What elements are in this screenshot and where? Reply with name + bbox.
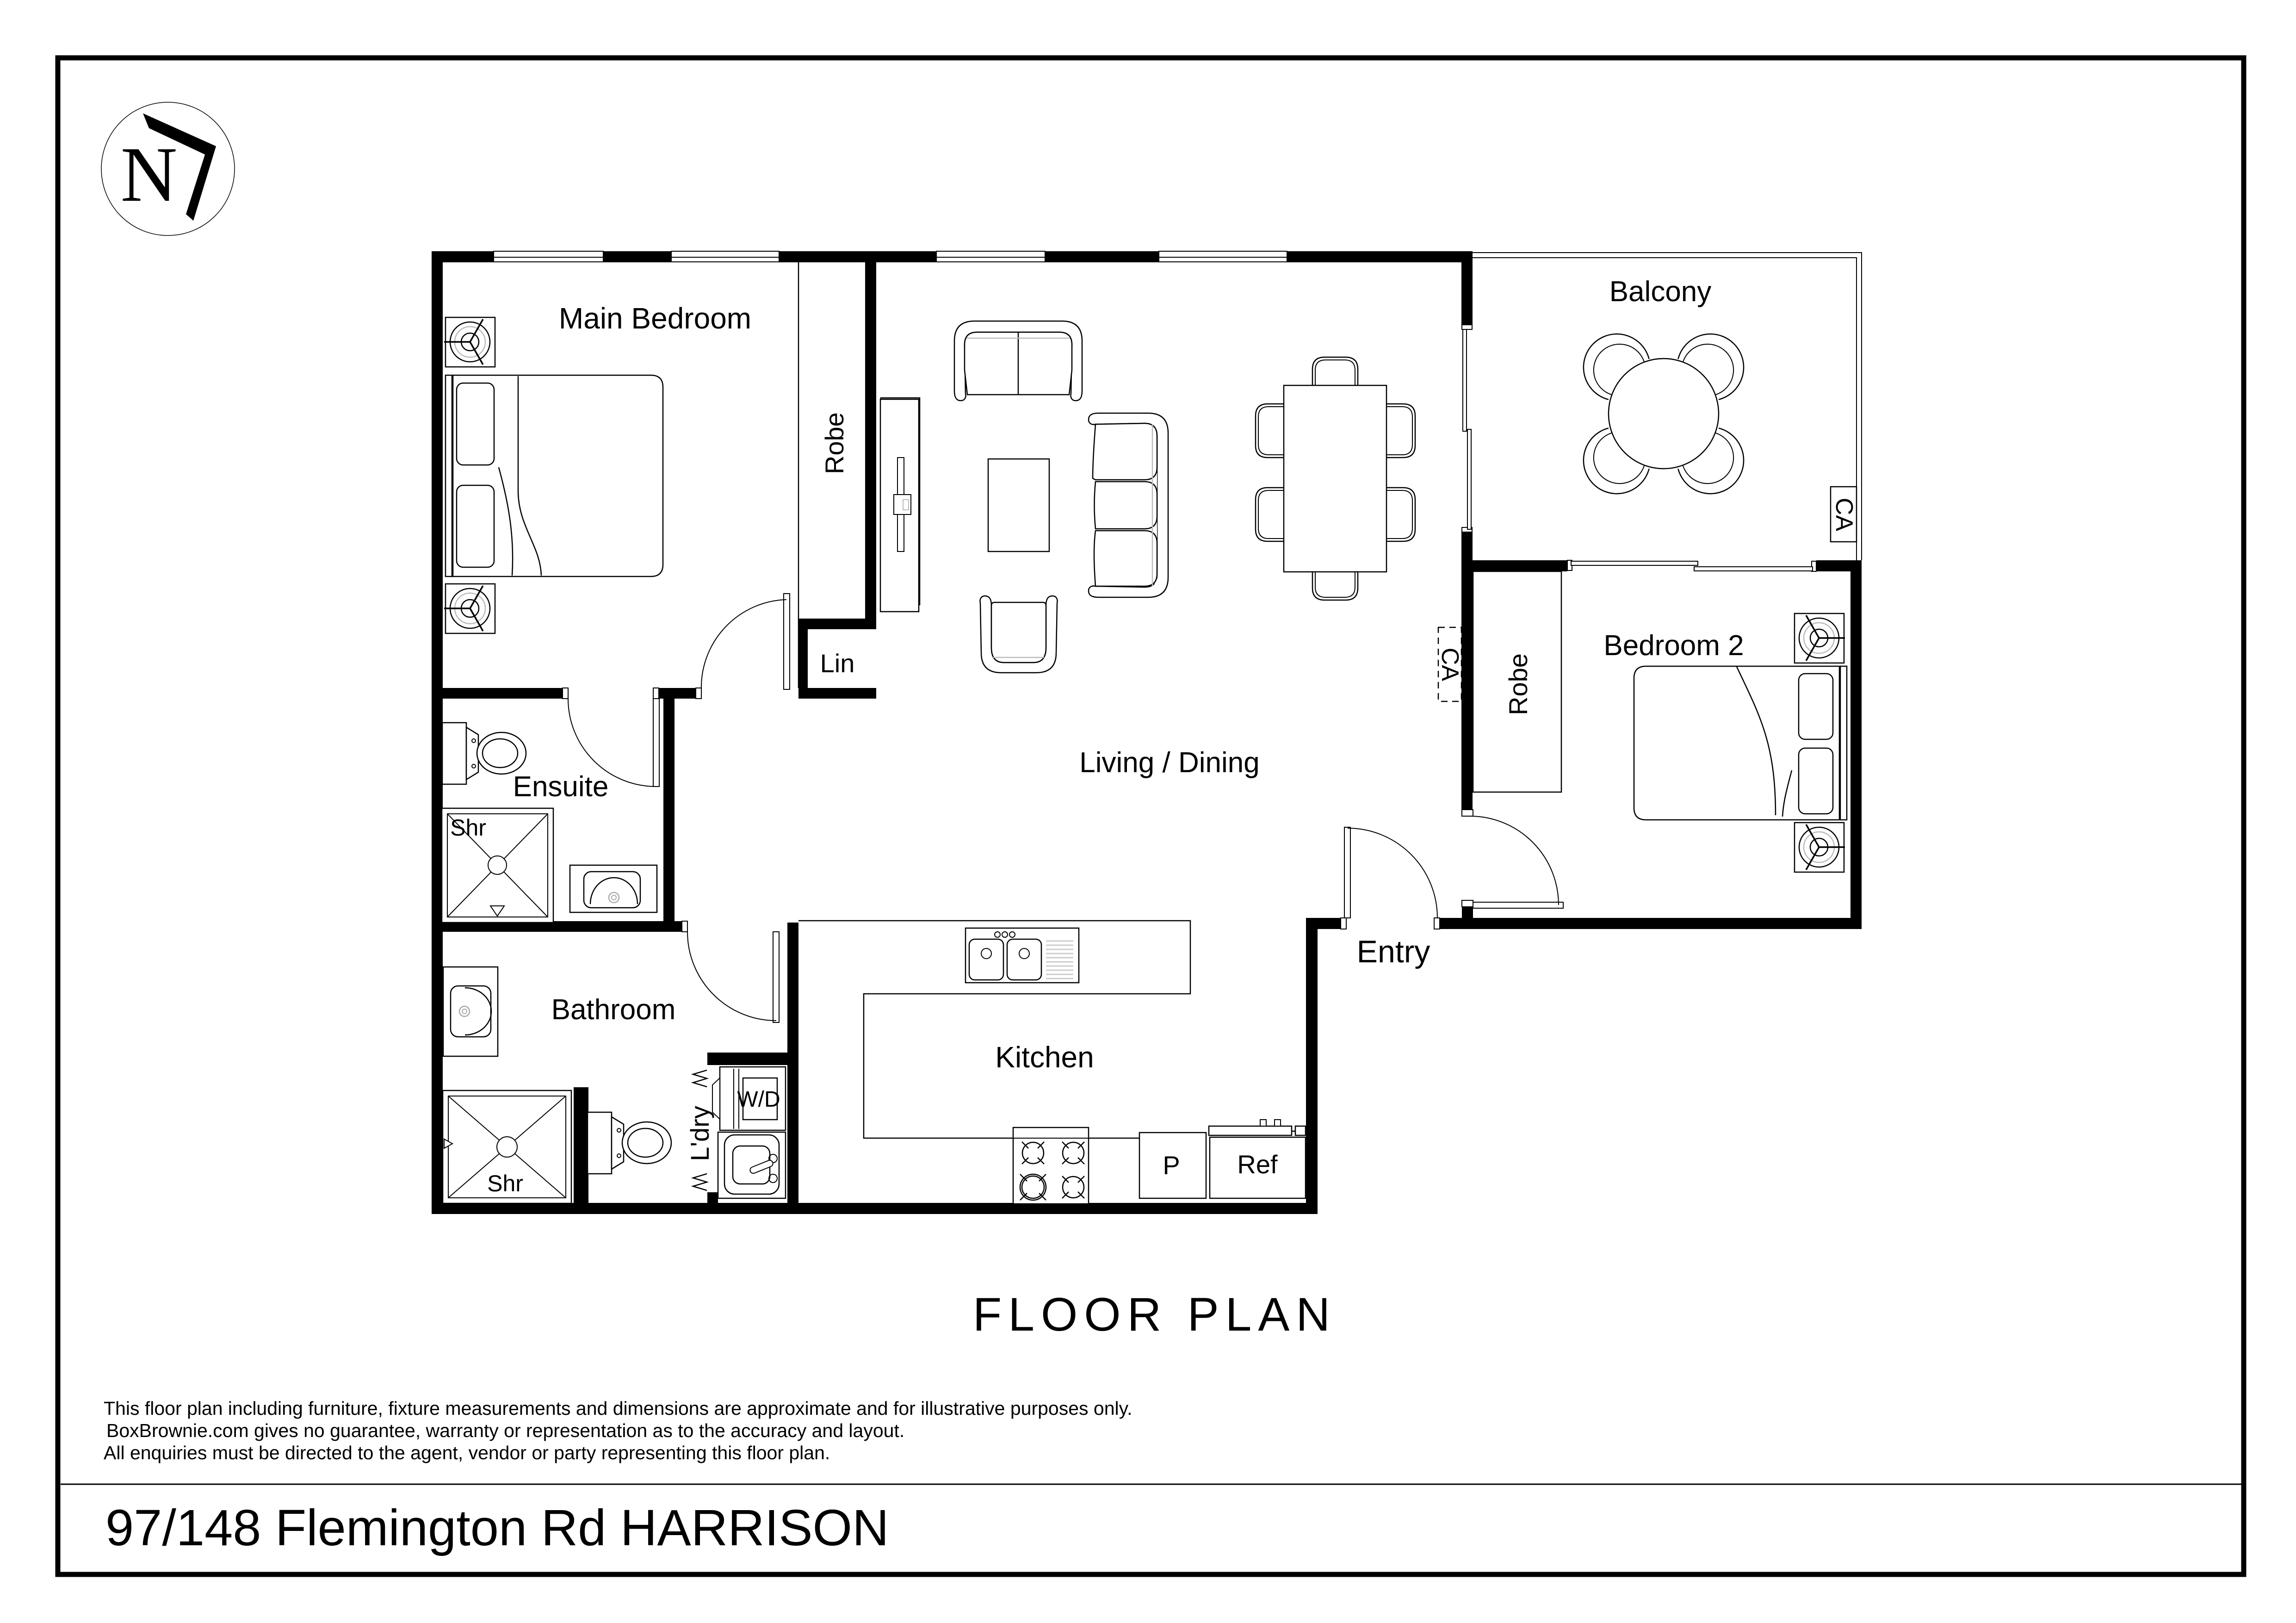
svg-text:Entry: Entry [1357, 934, 1430, 969]
svg-text:This floor plan including furn: This floor plan including furniture, fix… [104, 1398, 1132, 1419]
svg-text:W/D: W/D [737, 1087, 780, 1112]
svg-text:CA: CA [1436, 648, 1463, 681]
svg-text:Lin: Lin [820, 649, 855, 678]
svg-text:Bedroom 2: Bedroom 2 [1603, 630, 1744, 662]
svg-text:Bathroom: Bathroom [551, 994, 676, 1026]
svg-text:Balcony: Balcony [1609, 276, 1712, 308]
svg-text:Ensuite: Ensuite [513, 771, 609, 803]
svg-text:Shr: Shr [487, 1171, 523, 1196]
svg-text:Living / Dining: Living / Dining [1079, 747, 1259, 779]
svg-text:Shr: Shr [450, 815, 486, 841]
svg-text:Ref: Ref [1237, 1150, 1278, 1179]
svg-text:BoxBrownie.com gives no guaran: BoxBrownie.com gives no guarantee, warra… [106, 1420, 904, 1441]
svg-text:Main Bedroom: Main Bedroom [559, 302, 751, 335]
svg-text:Kitchen: Kitchen [995, 1041, 1094, 1074]
svg-text:Robe: Robe [1504, 653, 1533, 715]
svg-text:P: P [1163, 1151, 1180, 1180]
svg-text:All enquiries must be directed: All enquiries must be directed to the ag… [104, 1442, 830, 1463]
svg-text:FLOOR PLAN: FLOOR PLAN [973, 1288, 1337, 1341]
svg-text:97/148 Flemington Rd HARRISON: 97/148 Flemington Rd HARRISON [105, 1499, 889, 1556]
svg-text:N: N [121, 131, 178, 218]
svg-text:L'dry: L'dry [685, 1106, 714, 1161]
svg-text:CA: CA [1831, 498, 1857, 532]
svg-text:Robe: Robe [820, 412, 849, 474]
